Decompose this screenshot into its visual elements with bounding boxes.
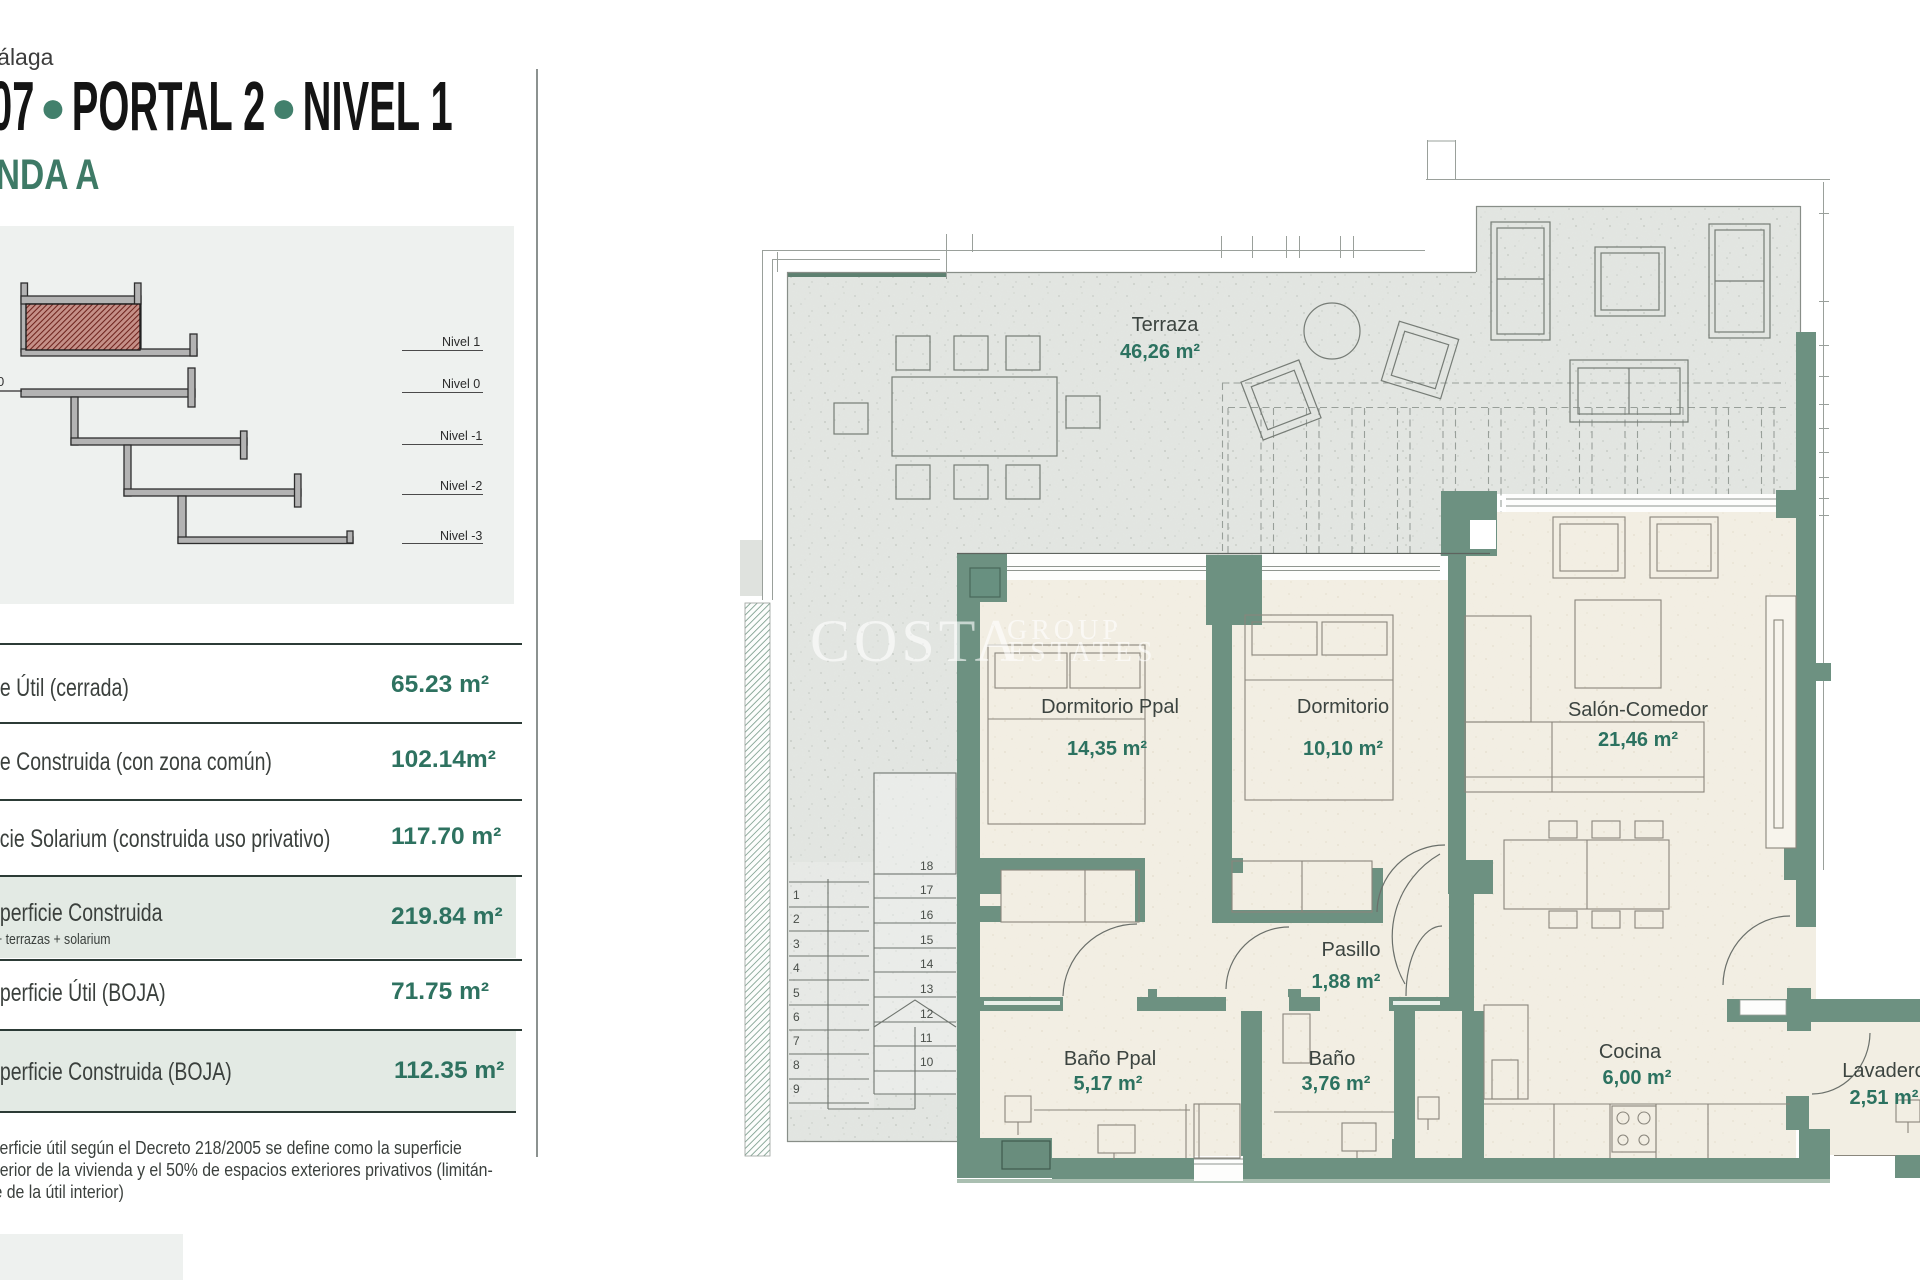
svg-text:7: 7 (793, 1034, 800, 1048)
svg-text:9: 9 (793, 1082, 800, 1096)
svg-text:Lavadero: Lavadero (1842, 1060, 1920, 1082)
svg-text:14: 14 (920, 957, 934, 971)
svg-text:ESTATES: ESTATES (1008, 637, 1157, 668)
svg-text:14,35 m²: 14,35 m² (1067, 738, 1147, 760)
svg-text:12: 12 (920, 1007, 934, 1021)
svg-text:1,88 m²: 1,88 m² (1312, 971, 1381, 993)
svg-text:10: 10 (920, 1055, 934, 1069)
svg-text:5,17 m²: 5,17 m² (1074, 1073, 1143, 1095)
svg-text:18: 18 (920, 859, 934, 873)
svg-text:3: 3 (793, 937, 800, 951)
svg-text:15: 15 (920, 933, 934, 947)
svg-text:11: 11 (920, 1031, 933, 1045)
svg-text:10,10 m²: 10,10 m² (1303, 738, 1383, 760)
svg-text:COSTA: COSTA (810, 608, 1022, 674)
svg-text:16: 16 (920, 908, 934, 922)
svg-text:1: 1 (793, 888, 800, 902)
svg-text:Baño Ppal: Baño Ppal (1064, 1048, 1156, 1070)
svg-text:6: 6 (793, 1010, 800, 1024)
svg-text:8: 8 (793, 1058, 800, 1072)
svg-text:2: 2 (793, 912, 800, 926)
svg-text:Salón-Comedor: Salón-Comedor (1568, 699, 1708, 721)
svg-text:6,00 m²: 6,00 m² (1603, 1067, 1672, 1089)
svg-text:4: 4 (793, 961, 800, 975)
svg-text:Pasillo: Pasillo (1322, 939, 1381, 961)
svg-text:5: 5 (793, 986, 800, 1000)
svg-text:Dormitorio: Dormitorio (1297, 696, 1389, 718)
svg-text:Terraza: Terraza (1132, 314, 1200, 336)
svg-text:46,26 m²: 46,26 m² (1120, 341, 1200, 363)
svg-text:Cocina: Cocina (1599, 1041, 1662, 1063)
svg-text:Dormitorio Ppal: Dormitorio Ppal (1041, 696, 1179, 718)
svg-text:17: 17 (920, 883, 934, 897)
svg-text:2,51 m²: 2,51 m² (1850, 1087, 1919, 1109)
svg-text:Baño: Baño (1309, 1048, 1356, 1070)
svg-text:21,46 m²: 21,46 m² (1598, 729, 1678, 751)
svg-text:13: 13 (920, 982, 934, 996)
svg-text:3,76 m²: 3,76 m² (1302, 1073, 1371, 1095)
